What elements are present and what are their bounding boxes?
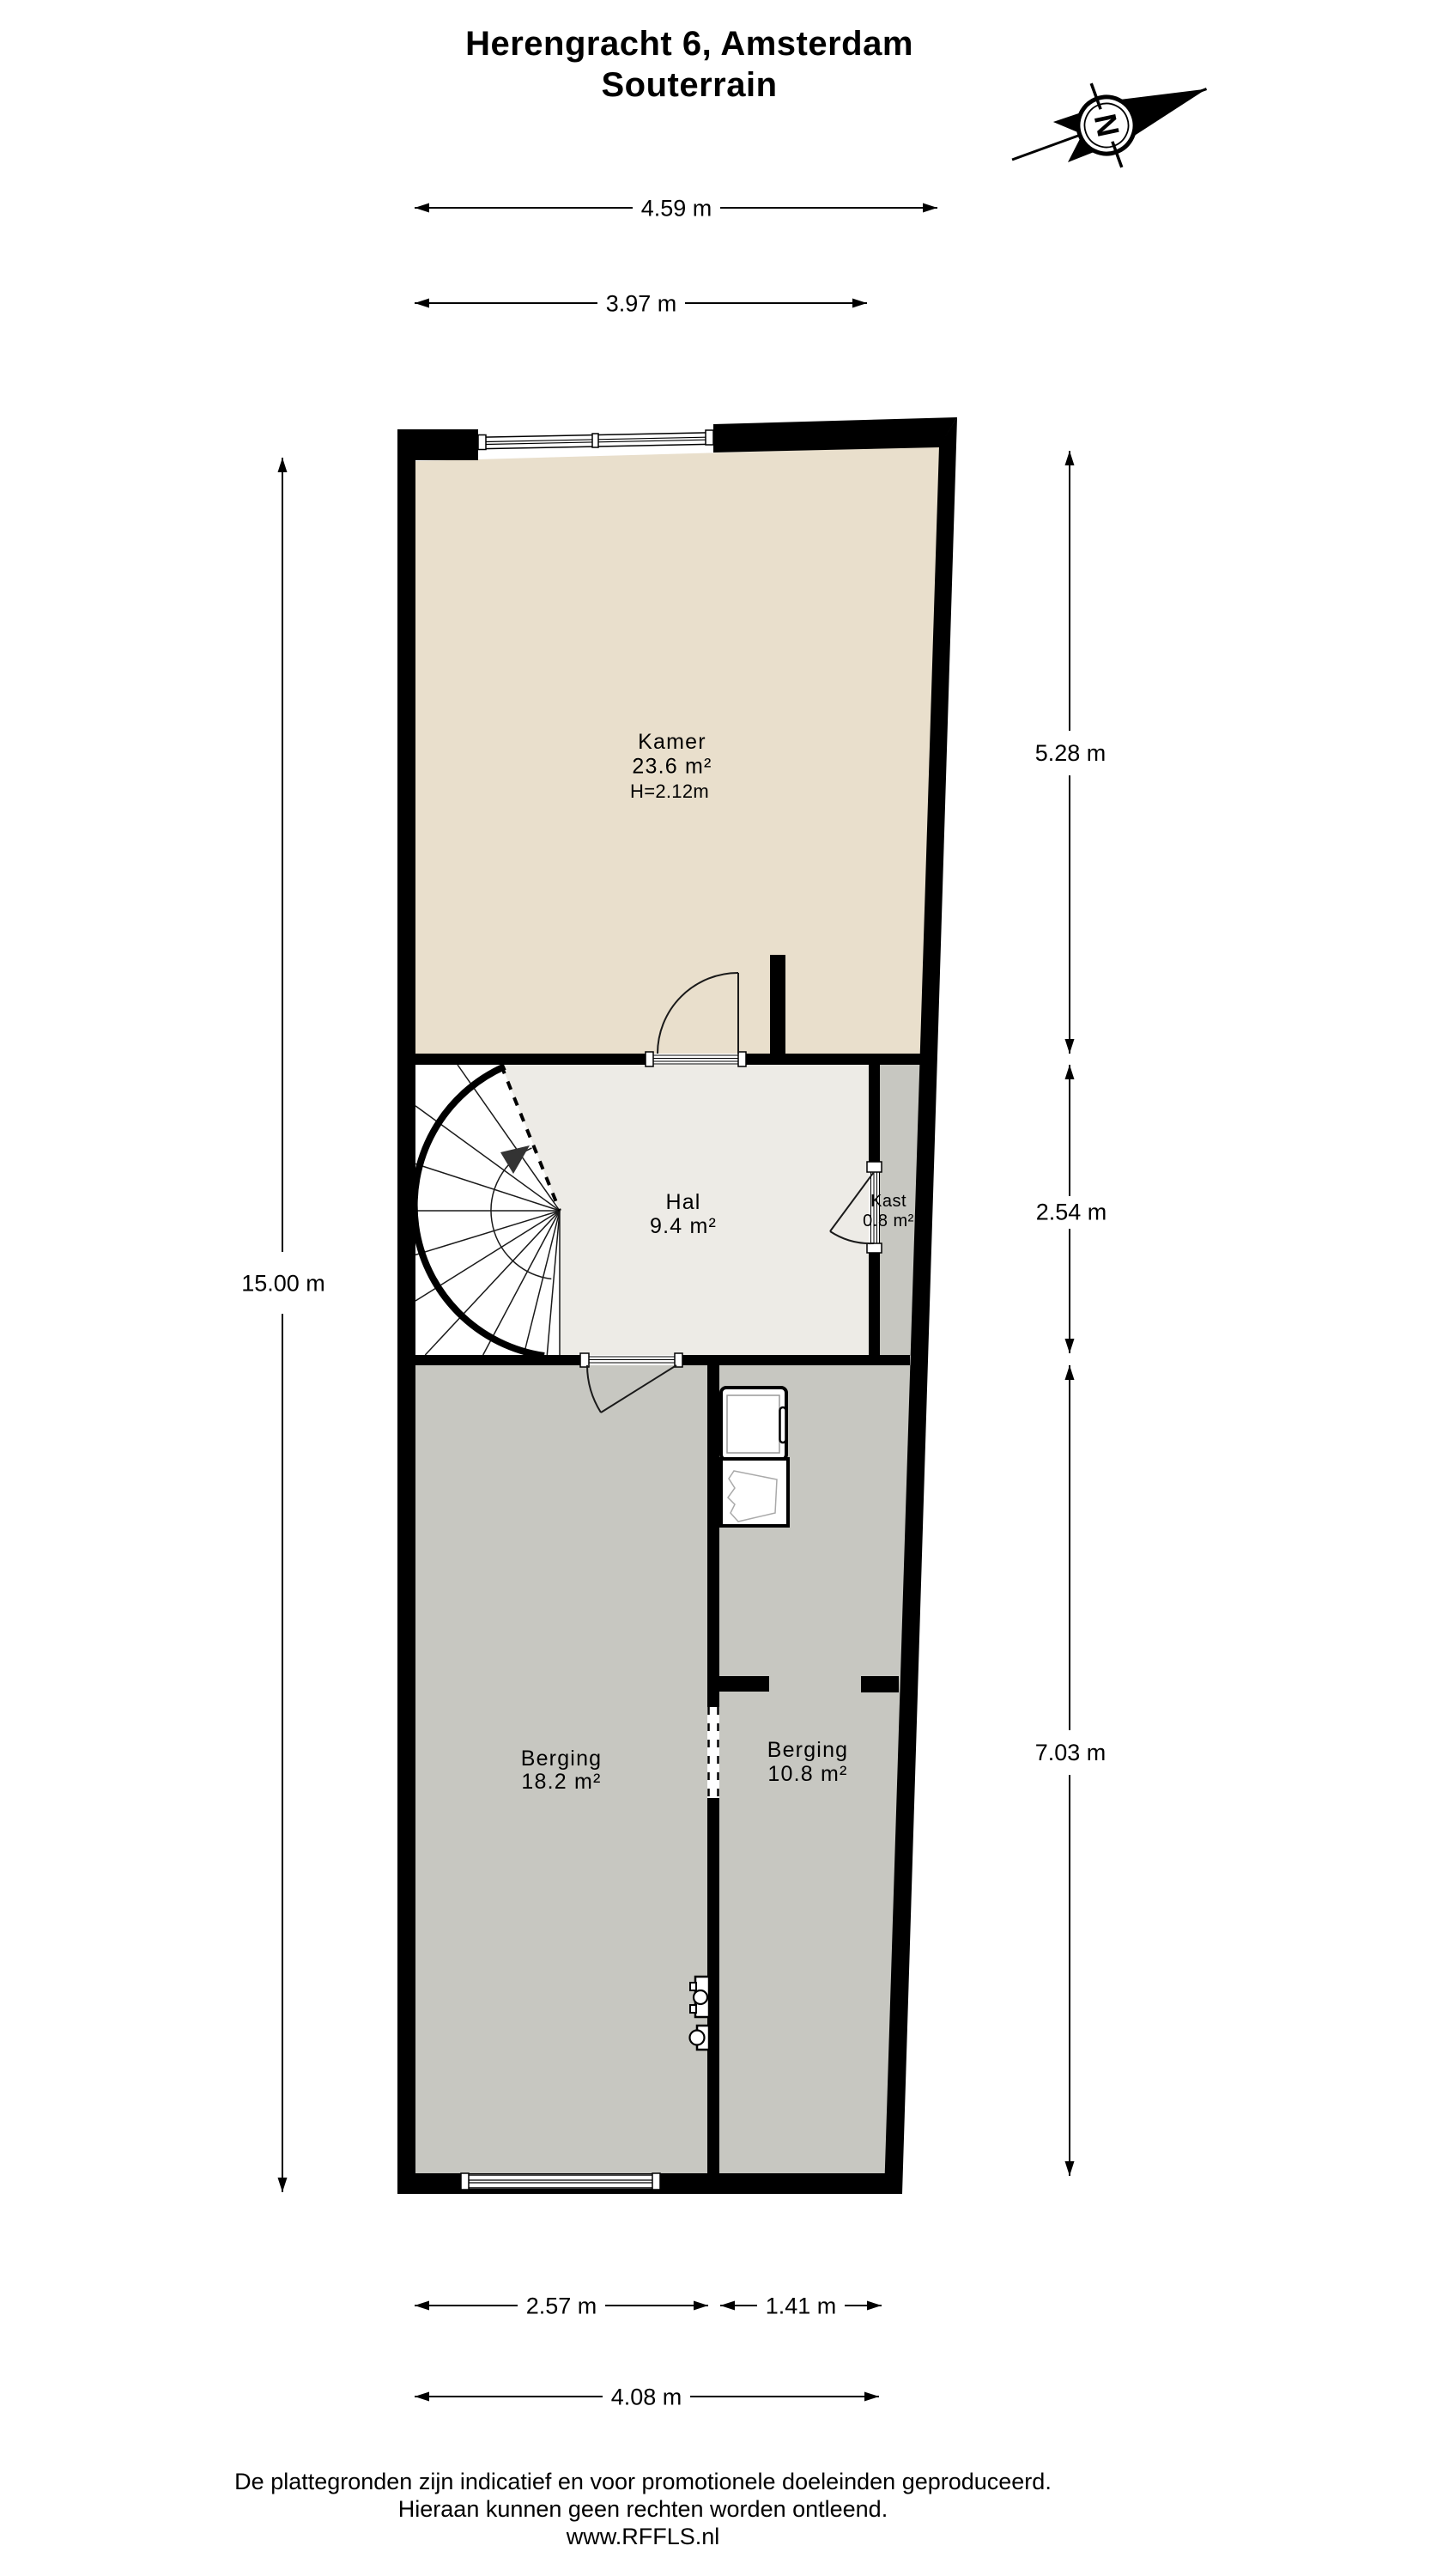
svg-text:0.8 m²: 0.8 m²	[863, 1212, 914, 1230]
svg-text:Hal: Hal	[665, 1190, 700, 1214]
svg-text:4.08 m: 4.08 m	[611, 2385, 682, 2410]
svg-text:www.RFFLS.nl: www.RFFLS.nl	[566, 2524, 720, 2549]
svg-text:1.41 m: 1.41 m	[766, 2293, 837, 2319]
svg-text:23.6 m²: 23.6 m²	[632, 755, 712, 779]
svg-text:De plattegronden zijn indicati: De plattegronden zijn indicatief en voor…	[234, 2469, 1052, 2494]
svg-text:18.2 m²: 18.2 m²	[521, 1770, 601, 1794]
svg-text:4.59 m: 4.59 m	[641, 196, 712, 222]
svg-text:2.54 m: 2.54 m	[1036, 1200, 1107, 1225]
svg-text:3.97 m: 3.97 m	[606, 291, 677, 317]
svg-text:2.57 m: 2.57 m	[526, 2293, 597, 2319]
svg-text:Herengracht 6, Amsterdam: Herengracht 6, Amsterdam	[465, 25, 913, 63]
svg-text:5.28 m: 5.28 m	[1035, 740, 1106, 766]
svg-text:Berging: Berging	[767, 1738, 849, 1762]
svg-text:10.8 m²: 10.8 m²	[767, 1762, 847, 1786]
svg-text:7.03 m: 7.03 m	[1035, 1740, 1106, 1765]
svg-text:Kast: Kast	[870, 1192, 906, 1211]
svg-text:Hieraan kunnen geen rechten wo: Hieraan kunnen geen rechten worden ontle…	[398, 2496, 888, 2522]
svg-text:Berging: Berging	[521, 1747, 603, 1771]
svg-text:Kamer: Kamer	[638, 730, 706, 754]
svg-text:15.00 m: 15.00 m	[241, 1271, 325, 1297]
svg-text:Souterrain: Souterrain	[601, 66, 777, 104]
svg-text:9.4 m²: 9.4 m²	[650, 1214, 717, 1238]
svg-text:H=2.12m: H=2.12m	[630, 781, 709, 802]
